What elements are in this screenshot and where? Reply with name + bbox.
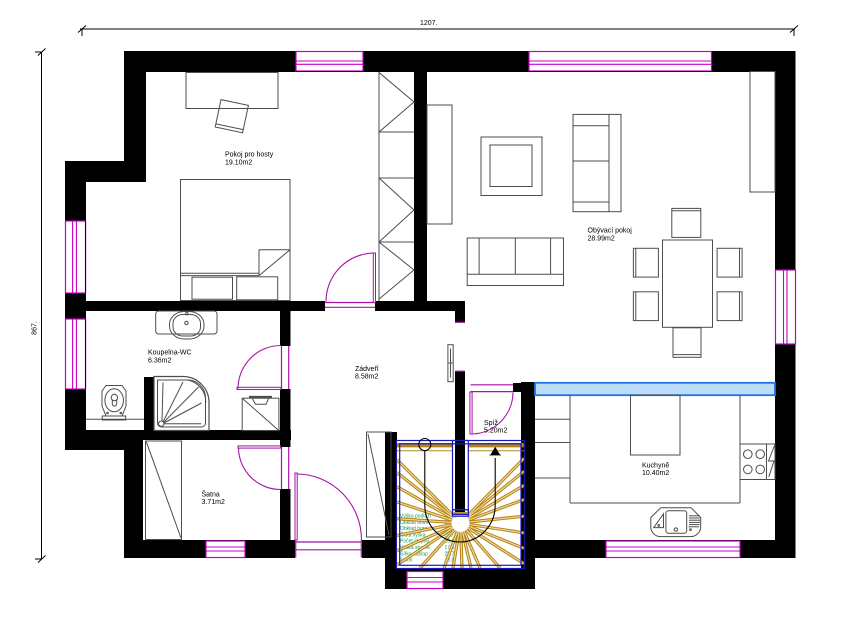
svg-text:Pokoj pro hosty: Pokoj pro hosty	[225, 152, 274, 159]
svg-text:Šatna: Šatna	[202, 489, 220, 498]
svg-text:6.36m2: 6.36m2	[148, 357, 171, 364]
svg-text:19.10m2: 19.10m2	[225, 159, 252, 166]
svg-text:5.20m2: 5.20m2	[484, 428, 507, 435]
svg-text:867.: 867.	[32, 321, 39, 335]
svg-text:Spíž: Spíž	[484, 420, 499, 427]
svg-text:1207.: 1207.	[420, 20, 438, 27]
svg-text:Obývací pokoj: Obývací pokoj	[588, 228, 633, 235]
svg-text:Kuchyně: Kuchyně	[642, 462, 669, 469]
svg-text:3.71m2: 3.71m2	[202, 499, 225, 506]
svg-text:28.99m2: 28.99m2	[588, 235, 615, 242]
svg-text:8.58m2: 8.58m2	[355, 374, 378, 381]
svg-text:Koupelna-WC: Koupelna-WC	[148, 350, 192, 357]
svg-text:10.40m2: 10.40m2	[642, 470, 669, 477]
svg-text:Zádveří: Zádveří	[355, 366, 379, 373]
